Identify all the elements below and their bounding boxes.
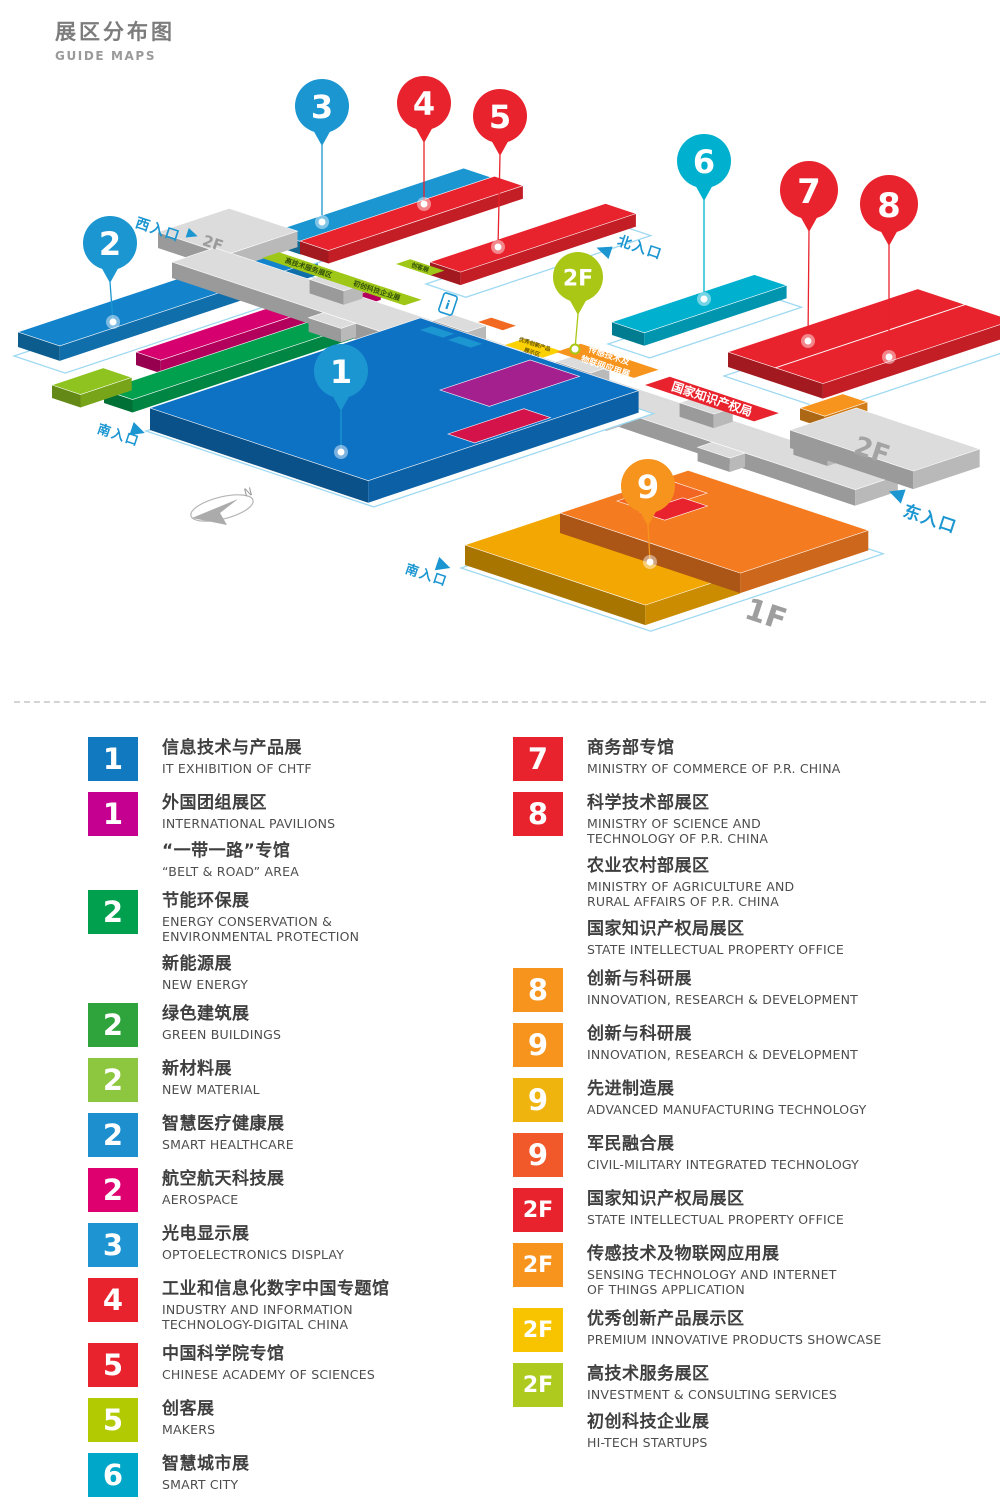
legend-badge: 7: [513, 737, 563, 781]
legend-badge: 2: [88, 1168, 138, 1212]
legend-row: 1信息技术与产品展IT EXHIBITION OF CHTF: [88, 737, 518, 781]
legend-title-en: CIVIL-MILITARY INTEGRATED TECHNOLOGY: [587, 1157, 859, 1172]
legend-badge: 2: [88, 1058, 138, 1102]
svg-text:东入口: 东入口: [901, 500, 960, 537]
legend-entry: 新能源展NEW ENERGY: [162, 953, 359, 992]
legend-title-zh: 信息技术与产品展: [162, 737, 312, 759]
legend-title-en: GREEN BUILDINGS: [162, 1027, 281, 1042]
legend-title-zh: 高技术服务展区: [587, 1363, 837, 1385]
legend-badge: 2F: [513, 1363, 563, 1407]
legend-badge: 8: [513, 792, 563, 836]
legend-title-zh: 智慧城市展: [162, 1453, 250, 1475]
legend-entry: 新材料展NEW MATERIAL: [162, 1058, 260, 1097]
legend-texts: 航空航天科技展AEROSPACE: [162, 1168, 285, 1207]
legend-entry: 科学技术部展区MINISTRY OF SCIENCE AND TECHNOLOG…: [587, 792, 844, 846]
legend-title-zh: 商务部专馆: [587, 737, 841, 759]
legend-title-zh: 创客展: [162, 1398, 215, 1420]
compass: N: [188, 485, 255, 526]
legend-title-zh: 传感技术及物联网应用展: [587, 1243, 837, 1265]
legend-title-zh: 工业和信息化数字中国专题馆: [162, 1278, 390, 1300]
legend-title-zh: 绿色建筑展: [162, 1003, 281, 1025]
legend-title-en: ADVANCED MANUFACTURING TECHNOLOGY: [587, 1102, 866, 1117]
legend-badge: 9: [513, 1023, 563, 1067]
legend-row: 4工业和信息化数字中国专题馆INDUSTRY AND INFORMATION T…: [88, 1278, 518, 1332]
legend-title-zh: 科学技术部展区: [587, 792, 844, 814]
legend-row: 9先进制造展ADVANCED MANUFACTURING TECHNOLOGY: [513, 1078, 943, 1122]
entrance-south-bottom: 南入口: [403, 548, 454, 590]
pin-5: 5: [473, 89, 527, 254]
svg-text:N: N: [243, 485, 254, 500]
pin-7-dot: [805, 338, 812, 345]
legend-title-en: NEW MATERIAL: [162, 1082, 260, 1097]
legend-badge: 6: [88, 1453, 138, 1497]
legend-texts: 优秀创新产品展示区PREMIUM INNOVATIVE PRODUCTS SHO…: [587, 1308, 882, 1347]
legend-texts: 新材料展NEW MATERIAL: [162, 1058, 260, 1097]
legend-title-en: NEW ENERGY: [162, 977, 359, 992]
legend-entry: 国家知识产权局展区STATE INTELLECTUAL PROPERTY OFF…: [587, 918, 844, 957]
legend-row: 2绿色建筑展GREEN BUILDINGS: [88, 1003, 518, 1047]
legend-title-zh: 优秀创新产品展示区: [587, 1308, 882, 1330]
legend-texts: 科学技术部展区MINISTRY OF SCIENCE AND TECHNOLOG…: [587, 792, 844, 957]
legend-title-en: INVESTMENT & CONSULTING SERVICES: [587, 1387, 837, 1402]
legend-entry: 农业农村部展区MINISTRY OF AGRICULTURE AND RURAL…: [587, 855, 844, 909]
legend-badge: 3: [88, 1223, 138, 1267]
legend-entry: 创新与科研展INNOVATION, RESEARCH & DEVELOPMENT: [587, 968, 858, 1007]
legend-row: 9军民融合展CIVIL-MILITARY INTEGRATED TECHNOLO…: [513, 1133, 943, 1177]
legend-row: 8创新与科研展INNOVATION, RESEARCH & DEVELOPMEN…: [513, 968, 943, 1012]
svg-text:8: 8: [877, 186, 901, 226]
legend-title-en: OPTOELECTRONICS DISPLAY: [162, 1247, 344, 1262]
legend-entry: 军民融合展CIVIL-MILITARY INTEGRATED TECHNOLOG…: [587, 1133, 859, 1172]
legend-badge: 2F: [513, 1243, 563, 1287]
legend-title-zh: 初创科技企业展: [587, 1411, 837, 1433]
legend-title-en: ENERGY CONSERVATION & ENVIRONMENTAL PROT…: [162, 914, 359, 944]
legend-row: 9创新与科研展INNOVATION, RESEARCH & DEVELOPMEN…: [513, 1023, 943, 1067]
legend-row: 2F优秀创新产品展示区PREMIUM INNOVATIVE PRODUCTS S…: [513, 1308, 943, 1352]
legend-title-en: STATE INTELLECTUAL PROPERTY OFFICE: [587, 1212, 844, 1227]
legend-title-zh: 国家知识产权局展区: [587, 1188, 844, 1210]
legend-title-en: HI-TECH STARTUPS: [587, 1435, 837, 1450]
legend-texts: 信息技术与产品展IT EXHIBITION OF CHTF: [162, 737, 312, 776]
pin-2f-ring: [571, 345, 580, 354]
legend-row: 8科学技术部展区MINISTRY OF SCIENCE AND TECHNOLO…: [513, 792, 943, 957]
legend-title-en: MAKERS: [162, 1422, 215, 1437]
legend-entry: 传感技术及物联网应用展SENSING TECHNOLOGY AND INTERN…: [587, 1243, 837, 1297]
legend-badge: 2: [88, 1113, 138, 1157]
legend-texts: 高技术服务展区INVESTMENT & CONSULTING SERVICES初…: [587, 1363, 837, 1450]
legend-entry: 国家知识产权局展区STATE INTELLECTUAL PROPERTY OFF…: [587, 1188, 844, 1227]
legend-row: 3光电显示展OPTOELECTRONICS DISPLAY: [88, 1223, 518, 1267]
legend-title-en: PREMIUM INNOVATIVE PRODUCTS SHOWCASE: [587, 1332, 882, 1347]
legend-texts: 智慧城市展SMART CITY: [162, 1453, 250, 1492]
legend-entry: 航空航天科技展AEROSPACE: [162, 1168, 285, 1207]
legend-badge: 1: [88, 737, 138, 781]
legend-texts: 国家知识产权局展区STATE INTELLECTUAL PROPERTY OFF…: [587, 1188, 844, 1227]
legend-entry: 先进制造展ADVANCED MANUFACTURING TECHNOLOGY: [587, 1078, 866, 1117]
legend-title-en: MINISTRY OF SCIENCE AND TECHNOLOGY OF P.…: [587, 816, 844, 846]
legend-title-zh: 农业农村部展区: [587, 855, 844, 877]
legend-badge: 9: [513, 1078, 563, 1122]
pin-5-dot: [495, 244, 502, 251]
legend-title-zh: 创新与科研展: [587, 968, 858, 990]
legend-title-en: STATE INTELLECTUAL PROPERTY OFFICE: [587, 942, 844, 957]
legend-title-en: AEROSPACE: [162, 1192, 285, 1207]
legend-title-zh: 外国团组展区: [162, 792, 335, 814]
legend-entry: 高技术服务展区INVESTMENT & CONSULTING SERVICES: [587, 1363, 837, 1402]
legend-column-left: 1信息技术与产品展IT EXHIBITION OF CHTF1外国团组展区INT…: [88, 737, 518, 1508]
legend-title-zh: 先进制造展: [587, 1078, 866, 1100]
legend-entry: 外国团组展区INTERNATIONAL PAVILIONS: [162, 792, 335, 831]
svg-text:2: 2: [99, 225, 121, 263]
legend-title-zh: 航空航天科技展: [162, 1168, 285, 1190]
legend-entry: 智慧医疗健康展SMART HEALTHCARE: [162, 1113, 294, 1152]
legend-title-en: INNOVATION, RESEARCH & DEVELOPMENT: [587, 992, 858, 1007]
pin-6-dot: [701, 296, 708, 303]
dashed-divider: [14, 701, 986, 703]
legend-title-en: MINISTRY OF AGRICULTURE AND RURAL AFFAIR…: [587, 879, 844, 909]
legend-entry: 创客展MAKERS: [162, 1398, 215, 1437]
legend-entry: 中国科学院专馆CHINESE ACADEMY OF SCIENCES: [162, 1343, 375, 1382]
legend-texts: 节能环保展ENERGY CONSERVATION & ENVIRONMENTAL…: [162, 890, 359, 992]
svg-text:9: 9: [637, 468, 659, 506]
legend-entry: 绿色建筑展GREEN BUILDINGS: [162, 1003, 281, 1042]
legend-title-zh: 中国科学院专馆: [162, 1343, 375, 1365]
svg-text:6: 6: [693, 143, 715, 181]
legend-title-en: SMART HEALTHCARE: [162, 1137, 294, 1152]
svg-text:西入口: 西入口: [133, 215, 182, 245]
pin-6: 6: [677, 134, 731, 306]
legend-texts: 传感技术及物联网应用展SENSING TECHNOLOGY AND INTERN…: [587, 1243, 837, 1297]
pin-8-dot: [886, 354, 893, 361]
legend-title-zh: 新能源展: [162, 953, 359, 975]
legend-title-en: INTERNATIONAL PAVILIONS: [162, 816, 335, 831]
legend-texts: 工业和信息化数字中国专题馆INDUSTRY AND INFORMATION TE…: [162, 1278, 390, 1332]
pin-4-dot: [421, 201, 428, 208]
legend-texts: 创客展MAKERS: [162, 1398, 215, 1437]
legend-badge: 8: [513, 968, 563, 1012]
svg-text:3: 3: [311, 88, 333, 126]
legend-badge: 9: [513, 1133, 563, 1177]
pin-9-dot: [647, 559, 654, 566]
legend-entry: “一带一路”专馆“BELT & ROAD” AREA: [162, 840, 335, 879]
legend-row: 2新材料展NEW MATERIAL: [88, 1058, 518, 1102]
legend-badge: 2F: [513, 1308, 563, 1352]
entrance-east: 东入口: [882, 485, 963, 538]
legend-texts: 创新与科研展INNOVATION, RESEARCH & DEVELOPMENT: [587, 1023, 858, 1062]
entrance-south-west: 南入口: [95, 412, 147, 451]
legend-row: 2航空航天科技展AEROSPACE: [88, 1168, 518, 1212]
pin-2f: 2F: [553, 252, 603, 354]
legend-entry: 初创科技企业展HI-TECH STARTUPS: [587, 1411, 837, 1450]
legend-texts: 外国团组展区INTERNATIONAL PAVILIONS“一带一路”专馆“BE…: [162, 792, 335, 879]
legend-texts: 创新与科研展INNOVATION, RESEARCH & DEVELOPMENT: [587, 968, 858, 1007]
legend-texts: 绿色建筑展GREEN BUILDINGS: [162, 1003, 281, 1042]
legend-title-zh: 光电显示展: [162, 1223, 344, 1245]
svg-text:4: 4: [413, 85, 435, 123]
legend-row: 1外国团组展区INTERNATIONAL PAVILIONS“一带一路”专馆“B…: [88, 792, 518, 879]
legend-entry: 节能环保展ENERGY CONSERVATION & ENVIRONMENTAL…: [162, 890, 359, 944]
legend-badge: 2: [88, 890, 138, 934]
legend-title-en: MINISTRY OF COMMERCE OF P.R. CHINA: [587, 761, 841, 776]
svg-text:7: 7: [797, 172, 821, 212]
legend-badge: 1: [88, 792, 138, 836]
svg-text:1: 1: [330, 353, 352, 391]
legend-texts: 智慧医疗健康展SMART HEALTHCARE: [162, 1113, 294, 1152]
legend-badge: 5: [88, 1398, 138, 1442]
legend-row: 5中国科学院专馆CHINESE ACADEMY OF SCIENCES: [88, 1343, 518, 1387]
legend-row: 5创客展MAKERS: [88, 1398, 518, 1442]
legend-entry: 创新与科研展INNOVATION, RESEARCH & DEVELOPMENT: [587, 1023, 858, 1062]
pin-3: 3: [295, 79, 349, 229]
legend-title-zh: 新材料展: [162, 1058, 260, 1080]
legend-texts: 商务部专馆MINISTRY OF COMMERCE OF P.R. CHINA: [587, 737, 841, 776]
legend-row: 2F高技术服务展区INVESTMENT & CONSULTING SERVICE…: [513, 1363, 943, 1450]
legend-entry: 商务部专馆MINISTRY OF COMMERCE OF P.R. CHINA: [587, 737, 841, 776]
pin-1-dot: [338, 449, 345, 456]
svg-text:2F: 2F: [563, 267, 593, 292]
pin-7-leader: [808, 231, 809, 341]
legend-title-en: CHINESE ACADEMY OF SCIENCES: [162, 1367, 375, 1382]
pin-2-dot: [110, 319, 117, 326]
legend-title-zh: 军民融合展: [587, 1133, 859, 1155]
legend-entry: 工业和信息化数字中国专题馆INDUSTRY AND INFORMATION TE…: [162, 1278, 390, 1332]
legend-title-en: SMART CITY: [162, 1477, 250, 1492]
legend-title-en: INDUSTRY AND INFORMATION TECHNOLOGY-DIGI…: [162, 1302, 390, 1332]
legend-row: 7商务部专馆MINISTRY OF COMMERCE OF P.R. CHINA: [513, 737, 943, 781]
legend-entry: 智慧城市展SMART CITY: [162, 1453, 250, 1492]
legend-title-zh: “一带一路”专馆: [162, 840, 335, 862]
legend-texts: 军民融合展CIVIL-MILITARY INTEGRATED TECHNOLOG…: [587, 1133, 859, 1172]
info-icon: i: [438, 292, 458, 315]
legend-row: 2F传感技术及物联网应用展SENSING TECHNOLOGY AND INTE…: [513, 1243, 943, 1297]
legend-badge: 2F: [513, 1188, 563, 1232]
exhibition-floor-map: 高技术服务展区初创科技企业展创客展优秀创新产品展示区传感技术及物联网应用展国家知…: [0, 0, 1000, 705]
legend-texts: 先进制造展ADVANCED MANUFACTURING TECHNOLOGY: [587, 1078, 866, 1117]
legend-texts: 中国科学院专馆CHINESE ACADEMY OF SCIENCES: [162, 1343, 375, 1382]
legend-title-zh: 国家知识产权局展区: [587, 918, 844, 940]
legend-title-en: SENSING TECHNOLOGY AND INTERNET OF THING…: [587, 1267, 837, 1297]
pin-3-dot: [319, 219, 326, 226]
legend-row: 2节能环保展ENERGY CONSERVATION & ENVIRONMENTA…: [88, 890, 518, 992]
legend-title-en: “BELT & ROAD” AREA: [162, 864, 335, 879]
legend-badge: 2: [88, 1003, 138, 1047]
legend-title-zh: 智慧医疗健康展: [162, 1113, 294, 1135]
legend-badge: 5: [88, 1343, 138, 1387]
legend-entry: 光电显示展OPTOELECTRONICS DISPLAY: [162, 1223, 344, 1262]
legend-texts: 光电显示展OPTOELECTRONICS DISPLAY: [162, 1223, 344, 1262]
legend-row: 2F国家知识产权局展区STATE INTELLECTUAL PROPERTY O…: [513, 1188, 943, 1232]
legend-row: 2智慧医疗健康展SMART HEALTHCARE: [88, 1113, 518, 1157]
legend-badge: 4: [88, 1278, 138, 1322]
legend-title-zh: 创新与科研展: [587, 1023, 858, 1045]
legend-column-right: 7商务部专馆MINISTRY OF COMMERCE OF P.R. CHINA…: [513, 737, 943, 1461]
legend-entry: 优秀创新产品展示区PREMIUM INNOVATIVE PRODUCTS SHO…: [587, 1308, 882, 1347]
legend-title-zh: 节能环保展: [162, 890, 359, 912]
legend-title-en: INNOVATION, RESEARCH & DEVELOPMENT: [587, 1047, 858, 1062]
legend-entry: 信息技术与产品展IT EXHIBITION OF CHTF: [162, 737, 312, 776]
legend-title-en: IT EXHIBITION OF CHTF: [162, 761, 312, 776]
svg-text:5: 5: [489, 98, 511, 136]
legend-row: 6智慧城市展SMART CITY: [88, 1453, 518, 1497]
